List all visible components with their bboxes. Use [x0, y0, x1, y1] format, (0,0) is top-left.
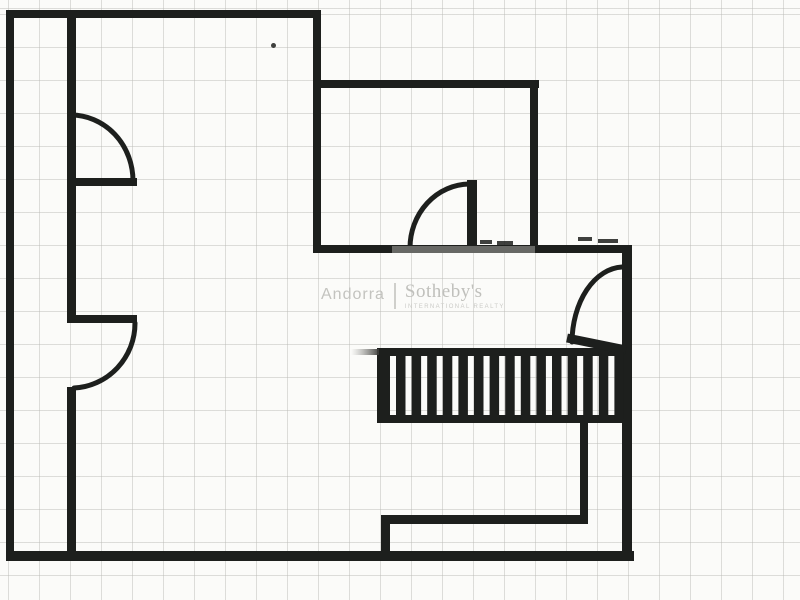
stair-tread	[490, 352, 500, 419]
scan-smudge	[497, 241, 513, 245]
scan-speck	[271, 43, 276, 48]
stair-tread	[412, 352, 422, 419]
door-3-leaf	[467, 180, 477, 250]
stair-tread	[583, 352, 593, 419]
top-outer-wall	[6, 10, 321, 18]
room2-top-wall	[313, 80, 539, 88]
scan-smudge	[578, 237, 592, 241]
room2-right-wall	[530, 80, 538, 253]
left-outer-wall	[6, 10, 14, 558]
stair-tread	[614, 352, 624, 419]
stair-rail-fade	[351, 349, 379, 355]
interior-wall-lower	[67, 387, 76, 554]
stair-tread	[552, 352, 562, 419]
room2-left-wall	[313, 10, 321, 253]
floor-plan-drawing	[0, 0, 800, 600]
stair-tread	[568, 352, 578, 419]
stair-tread	[396, 352, 406, 419]
door-1-stub-wall	[70, 178, 137, 186]
interior-wall-upper	[67, 12, 76, 323]
door-2-stub-wall	[70, 315, 137, 323]
door-4-swing-arc	[572, 267, 622, 342]
stair-tread	[599, 352, 609, 419]
stair-tread	[474, 352, 484, 419]
stair-tread	[536, 352, 546, 419]
scan-smudge	[598, 239, 618, 243]
hall-wall-vertical	[580, 423, 588, 521]
walls-layer	[6, 10, 634, 561]
hall-wall-horizontal	[383, 515, 588, 524]
stair-tread	[427, 352, 437, 419]
stair-tread	[458, 352, 468, 419]
door-2-swing-arc	[74, 323, 135, 388]
door-1-swing-arc	[71, 115, 133, 181]
bottom-outer-wall	[6, 551, 634, 561]
hall-wall-stub	[381, 515, 390, 559]
stair-tread	[521, 352, 531, 419]
door-3-swing-arc	[410, 184, 469, 248]
stair-left-post	[377, 348, 390, 423]
wall-scan-fade	[392, 246, 535, 253]
stair-tread	[505, 352, 515, 419]
stair-tread	[443, 352, 453, 419]
floorplan-scan-page: Andorra Sotheby's INTERNATIONAL REALTY	[0, 0, 800, 600]
scan-smudge	[480, 240, 492, 244]
